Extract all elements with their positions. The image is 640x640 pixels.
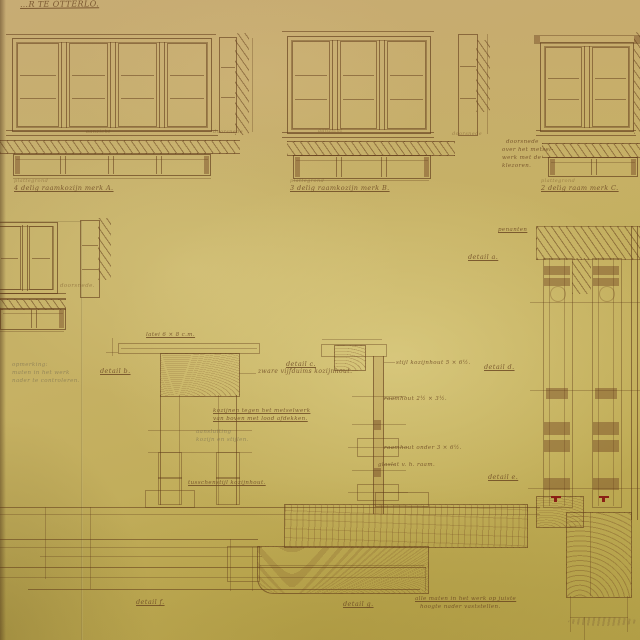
detail-a-cross-line <box>528 488 640 489</box>
label-latei: latei 6 × 8 c.m. <box>146 332 195 338</box>
detail-b-lintel-midline <box>121 348 257 349</box>
drawing-sheet: …R TE OTTERLO. <box>0 0 640 640</box>
window-c-plan-endblock <box>550 159 555 175</box>
detail-b-bracket-tick <box>106 352 118 353</box>
window-b-lintel-line <box>282 31 434 32</box>
window-c-sash <box>592 47 629 127</box>
window-a-sash <box>69 43 108 127</box>
window-c-plan-mullion <box>591 159 597 175</box>
window-b-plan-endblock <box>424 157 429 177</box>
detail-a-rail <box>593 266 619 275</box>
note-raamhout-onder: raamhout onder 3 × 6½. <box>384 445 462 451</box>
window-c-masonry-band <box>542 143 640 158</box>
window-b-plan-line <box>296 160 428 161</box>
sill-connector-block <box>145 490 195 508</box>
window-b-mullion <box>379 40 385 130</box>
caption-merk-c: 2 delig raam merk C. <box>541 185 619 192</box>
note-metselwerk-line2: van boven met lood afdekken. <box>213 416 308 422</box>
note-aansluiting-line1: aansluiting <box>196 429 231 435</box>
label-detail-e: detail e. <box>488 474 518 481</box>
window-d-sash <box>0 226 21 290</box>
pencil-note-line2: maten in het werk <box>12 370 70 376</box>
note-doorsnede-line3: werk met de <box>502 155 541 161</box>
detail-a-masonry-head <box>536 226 640 260</box>
pencil-note-line1: opmerking: <box>12 362 48 368</box>
window-a-mullion <box>159 42 165 128</box>
bottom-right-tall-wood <box>566 512 632 598</box>
label-doorsnede-b: doorsnede <box>452 132 482 138</box>
bottom-right-leg <box>570 596 571 632</box>
detail-c-cross-line <box>352 470 406 471</box>
window-b-plan-mullion <box>381 157 387 177</box>
label-tusschenstijl: tusschenstijl kozijnhout. <box>188 480 266 486</box>
window-a-plan-mullion <box>156 156 162 174</box>
bottom-right-leg <box>627 596 628 632</box>
window-b-sash <box>292 41 330 129</box>
note-doorsnede-line1: doorsnede <box>506 139 539 145</box>
window-b-plan <box>293 155 431 179</box>
label-penanten: penanten <box>498 227 527 233</box>
note-metselwerk-line1: kozijnen tegen het metselwerk <box>213 408 310 414</box>
caption-merk-a: 4 delig raamkozijn merk A. <box>14 185 114 192</box>
window-a-wall-hatch <box>235 33 249 135</box>
window-a-elevation <box>12 38 212 132</box>
window-a-plan-endblock <box>204 156 209 174</box>
label-doorsnede-a: doorsnede <box>213 130 243 136</box>
detail-a-rail <box>544 266 570 275</box>
window-a-plan-mullion <box>60 156 66 174</box>
window-a-masonry-band <box>0 140 240 154</box>
window-a-plan-endblock <box>15 156 20 174</box>
window-a-dim-line <box>252 38 253 132</box>
note-doorsnede-line2: over het metsel- <box>502 147 554 153</box>
window-a-mullion <box>61 42 67 128</box>
window-b-plan-mullion <box>336 157 342 177</box>
window-a-plan-mullion <box>108 156 114 174</box>
label-detail-d: detail d. <box>484 364 515 371</box>
note-aansluiting-line2: kozijn en stijlen. <box>196 437 249 443</box>
detail-a-rail <box>544 278 570 286</box>
note-maten-line2: hoogte nader vaststellen. <box>420 604 501 610</box>
sill-tick <box>90 507 91 589</box>
window-c-elevation <box>540 42 634 132</box>
red-fixing-mark <box>599 496 609 498</box>
note-maten-line1: alle maten in het werk op juiste <box>415 596 516 602</box>
window-a-sash <box>118 43 157 127</box>
note-kozijnhout: zware vijfduims kozijnhout. <box>258 369 352 376</box>
note-stijl-kozijnhout: stijl kozijnhout 5 × 6½. <box>396 360 471 366</box>
detail-b-bracket <box>112 338 113 356</box>
sill-line <box>0 547 262 548</box>
sill-line <box>0 539 258 540</box>
window-b-section <box>458 34 478 136</box>
detail-a-rail <box>593 440 619 452</box>
detail-a-wood-swirl <box>599 286 615 302</box>
caption-merk-b: 3 delig raamkozijn merk B. <box>290 185 390 192</box>
detail-a-gap-hatch <box>572 258 591 294</box>
window-d-wall-hatch <box>98 218 111 280</box>
sill-small-block <box>227 546 260 582</box>
sill-tick <box>45 507 46 579</box>
window-b-mullion <box>332 40 338 130</box>
label-detail-f: detail f. <box>136 599 165 606</box>
pencil-note-line3: nader te controleren. <box>12 378 80 384</box>
detail-c-leader <box>384 362 395 363</box>
window-c-mullion <box>584 46 590 128</box>
window-c-sill <box>536 130 636 136</box>
label-detail-b: detail b. <box>100 368 131 375</box>
window-d-plan <box>0 308 66 330</box>
detail-a-rail <box>544 440 570 452</box>
window-a-sash <box>167 43 207 127</box>
detail-c-dim <box>322 339 382 340</box>
detail-b-kozijn-wood-section <box>160 353 240 397</box>
detail-a-rail <box>593 422 619 435</box>
detail-b-rail-block <box>158 452 182 479</box>
detail-a-rail <box>544 422 570 435</box>
window-a-sash <box>17 43 59 127</box>
detail-b-rail-block <box>216 452 240 479</box>
window-a-lintel-line <box>6 34 216 35</box>
detail-a-cross-line <box>530 390 640 391</box>
detail-a-cross-line <box>530 302 640 303</box>
window-b-elevation <box>287 36 431 134</box>
sill-nose-wood <box>257 546 429 594</box>
detail-a-wall-edge <box>631 226 638 520</box>
sill-nose-profile-line <box>260 565 424 566</box>
label-detail-g: detail g. <box>343 601 374 608</box>
window-d-plan-mullion <box>31 310 37 328</box>
window-a-sill <box>6 130 218 136</box>
signature-scribble <box>568 617 638 626</box>
window-b-masonry-band <box>287 141 455 156</box>
window-b-sash <box>340 41 377 129</box>
window-d-plan-endblock <box>59 310 64 328</box>
label-doorsnede-d: doorsnede. <box>60 283 95 289</box>
label-detail-c: detail c. <box>286 361 316 368</box>
window-b-dim-line <box>487 34 488 134</box>
label-aanzicht-b: aanzicht <box>318 129 343 135</box>
window-c-plan <box>548 157 638 177</box>
red-fixing-mark <box>551 496 561 498</box>
window-b-sash <box>387 41 426 129</box>
window-c-sash <box>545 47 582 127</box>
note-raamhout-boven: raamhout 2½ × 3½. <box>384 396 447 402</box>
window-c-plan-endblock <box>631 159 636 175</box>
window-b-sill <box>282 132 434 138</box>
sill-top-rail-wood <box>284 504 528 548</box>
window-d-plan-dim <box>0 331 64 332</box>
window-d-mullion <box>22 225 28 291</box>
label-aanzicht-a: aanzicht <box>86 130 111 136</box>
note-doorsnede-line4: klezoren. <box>502 163 531 169</box>
bottom-right-inner-line <box>590 512 591 596</box>
window-a-mullion <box>110 42 116 128</box>
detail-a-rail <box>593 278 619 286</box>
detail-c-joint <box>374 420 381 430</box>
window-a-plan <box>13 154 211 176</box>
detail-c-cross-line <box>352 424 406 425</box>
detail-a-wood-swirl <box>550 286 566 302</box>
window-c-wall-hatch <box>634 32 640 134</box>
window-d-elevation <box>0 222 58 294</box>
sheet-title: …R TE OTTERLO. <box>20 0 99 9</box>
label-detail-a: detail a. <box>468 254 498 261</box>
window-d-sash <box>29 226 53 290</box>
detail-b-leader <box>239 373 256 374</box>
window-b-plan-endblock <box>295 157 300 177</box>
note-glaslat: glaslat v. h. raam. <box>378 462 435 468</box>
